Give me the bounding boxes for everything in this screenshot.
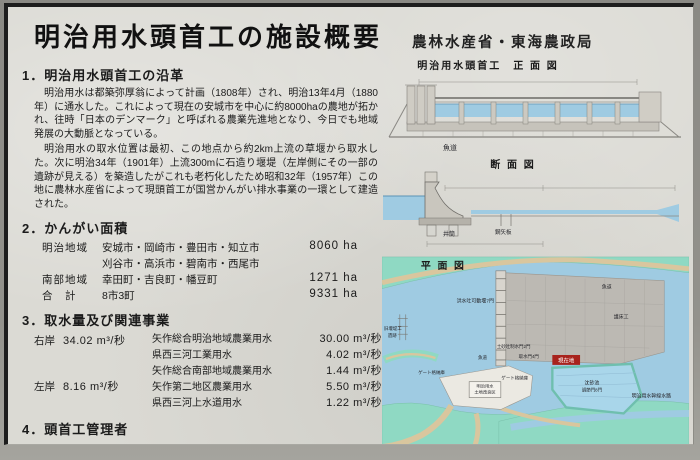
- fishway-label-bottom: 魚道: [478, 354, 487, 361]
- downstream-pool: [657, 204, 679, 222]
- area-row-label: [42, 256, 102, 271]
- intake-item: 矢作総合明治地域農業用水 30.00 m³/秒: [152, 332, 382, 348]
- intake-item-value: 4.02 m³/秒: [326, 348, 382, 364]
- area-row-label: 明治地域: [42, 240, 102, 255]
- front-elevation-drawing: 明治用水頭首工 正 面 図: [382, 58, 689, 154]
- area-row-cities: 幸田町・吉良町・幡豆町: [102, 272, 278, 287]
- area-row-value: [278, 256, 358, 271]
- front-elevation-title: 明治用水頭首工 正 面 図: [417, 59, 559, 72]
- gate-house-label-2: ゲート格納庫: [501, 375, 528, 382]
- basin-label: 沈砂池: [585, 380, 600, 387]
- left-bank-label: 左岸: [34, 379, 55, 394]
- history-paragraph-1: 明治用水は都築弥厚翁によって計画（1808年）され、明治13年4月（1880年）…: [34, 87, 378, 141]
- right-abutment: [639, 92, 661, 122]
- right-bank-label: 右岸: [34, 333, 55, 348]
- section-history-heading: 1．明治用水頭首工の沿革: [22, 65, 382, 84]
- right-bank-row: 右岸 34.02 m³/秒: [34, 332, 152, 348]
- front-elevation-figure: 明治用水頭首工 正 面 図: [382, 58, 689, 154]
- sign-content: 1．明治用水頭首工の沿革 明治用水は都築弥厚翁によって計画（1808年）され、明…: [8, 58, 693, 445]
- plan-view-title: 平 面 図: [421, 260, 466, 272]
- intake-table: 右岸 34.02 m³/秒 左岸 8.16 m³/秒 矢作総合明治地域農業用水: [34, 332, 382, 412]
- sand-gates-label: 土砂吐制水門2門: [497, 343, 531, 350]
- section-intake: 3．取水量及び関連事業 右岸 34.02 m³/秒 左岸 8.16 m³/秒: [22, 310, 382, 412]
- caisson-label: 井筒: [443, 230, 455, 238]
- gate-housing: [425, 172, 437, 182]
- cross-section-drawing: 断 面 図: [382, 154, 689, 256]
- downstream-water: [471, 210, 657, 214]
- old-weir-label-1: 旧堰堤工: [384, 325, 402, 332]
- fishway-label-top: 魚道: [602, 284, 612, 291]
- sheet-pile-label: 鋼矢板: [495, 228, 512, 236]
- intake-item: 県西三河上水道用水 1.22 m³/秒: [152, 396, 382, 412]
- section-manager: 4．頭首工管理者 明治用水土地改良区 安城市大東町 TEL.0566.76-62…: [22, 419, 382, 445]
- area-row-value: 1271 ha: [278, 272, 358, 287]
- foundation-hatch: [423, 131, 633, 137]
- gate-house-label-1: ゲート格納庫: [418, 369, 445, 376]
- old-weir-label-2: 遺跡: [388, 332, 397, 339]
- current-location-label: 現在地: [558, 356, 575, 364]
- weir-axis-bridge: [496, 271, 506, 366]
- intake-item-list: 矢作総合明治地域農業用水 30.00 m³/秒 県西三河工業用水 4.02 m³…: [152, 332, 382, 412]
- weir-base: [407, 122, 659, 131]
- plan-view-map: 平 面 図 洪水吐可動堰7門 土砂吐制水門2門 取水門4門 魚道 魚道 護床工 …: [382, 256, 689, 445]
- intake-item-value: 30.00 m³/秒: [320, 332, 382, 348]
- section-intake-heading: 3．取水量及び関連事業: [22, 310, 382, 329]
- intake-item-value: 1.44 m³/秒: [326, 364, 382, 380]
- intake-item-name: 矢作総合明治地域農業用水: [152, 333, 272, 348]
- area-row-label: 合 計: [42, 288, 102, 303]
- intake-item-name: 矢作総合南部地域農業用水: [152, 365, 272, 380]
- section-history: 1．明治用水頭首工の沿革 明治用水は都築弥厚翁によって計画（1808年）され、明…: [22, 65, 382, 211]
- irrigation-area-table: 明治地域 安城市・岡崎市・豊田市・知立市 8060 ha 刈谷市・高浜市・碧南市…: [42, 240, 382, 303]
- area-row-cities: 安城市・岡崎市・豊田市・知立市: [102, 240, 278, 255]
- area-row-value: 8060 ha: [278, 240, 358, 255]
- history-paragraph-2: 明治用水の取水位置は最初、この地点から約2km上流の草堰から取水した。次に明治3…: [34, 143, 378, 211]
- apron-label: 護床工: [614, 313, 629, 320]
- intake-item-value: 1.22 m³/秒: [326, 396, 382, 412]
- intake-item: 矢作総合南部地域農業用水 1.44 m³/秒: [152, 364, 382, 380]
- main-canal-label: 明治用水幹線水路: [632, 393, 672, 400]
- section-irrigation-area-heading: 2．かんがい面積: [22, 218, 382, 237]
- left-bank-value: 8.16 m³/秒: [63, 378, 119, 394]
- intake-towers: [405, 85, 437, 124]
- front-fishway-label: 魚道: [443, 143, 457, 152]
- intake-gates-label: 取水門4門: [519, 353, 540, 360]
- cross-section-figure: 断 面 図: [382, 154, 689, 256]
- right-bank-value: 34.02 m³/秒: [63, 332, 125, 348]
- area-row-cities: 刈谷市・高浜市・碧南市・西尾市: [102, 256, 278, 271]
- office-label-2: 土地改良区: [474, 389, 496, 396]
- cross-section-title: 断 面 図: [490, 158, 536, 171]
- sign-header: 明治用水頭首工の施設概要 農林水産省・東海農政局: [8, 7, 693, 54]
- figure-column: 明治用水頭首工 正 面 図: [382, 58, 693, 445]
- right-abutment-slope: [661, 122, 679, 137]
- area-row-value: 9331 ha: [278, 288, 358, 303]
- intake-item-name: 矢作第二地区農業用水: [152, 381, 252, 396]
- basin-gates-label: 調節門8門: [582, 387, 603, 394]
- area-row-label: 南部地域: [42, 272, 102, 287]
- intake-item: 県西三河工業用水 4.02 m³/秒: [152, 348, 382, 364]
- sign-board: 明治用水頭首工の施設概要 農林水産省・東海農政局 1．明治用水頭首工の沿革 明治…: [4, 3, 694, 445]
- photo-background: 明治用水頭首工の施設概要 農林水産省・東海農政局 1．明治用水頭首工の沿革 明治…: [0, 0, 700, 460]
- flood-gates-label: 洪水吐可動堰7門: [457, 298, 494, 305]
- intake-item-value: 5.50 m³/秒: [326, 380, 382, 396]
- section-manager-heading: 4．頭首工管理者: [22, 419, 382, 438]
- intake-item-name: 県西三河上水道用水: [152, 397, 242, 412]
- area-row-cities: 8市3町: [102, 288, 278, 303]
- left-abutment-slope: [389, 104, 407, 137]
- sign-title: 明治用水頭首工の施設概要: [34, 17, 382, 54]
- left-bank-row: 左岸 8.16 m³/秒: [34, 378, 152, 394]
- section-irrigation-area: 2．かんがい面積 明治地域 安城市・岡崎市・豊田市・知立市 8060 ha 刈谷…: [22, 218, 382, 303]
- dam-foundation: [419, 218, 471, 225]
- text-column: 1．明治用水頭首工の沿革 明治用水は都築弥厚翁によって計画（1808年）され、明…: [8, 58, 382, 445]
- upstream-water: [383, 196, 425, 220]
- bank-totals: 右岸 34.02 m³/秒 左岸 8.16 m³/秒: [34, 332, 152, 412]
- agency-name: 農林水産省・東海農政局: [412, 31, 594, 52]
- intake-item: 矢作第二地区農業用水 5.50 m³/秒: [152, 380, 382, 396]
- office-label-1: 明治用水: [476, 383, 494, 390]
- intake-item-name: 県西三河工業用水: [152, 349, 232, 364]
- dam-body: [425, 182, 463, 220]
- plan-view-figure: 平 面 図 洪水吐可動堰7門 土砂吐制水門2門 取水門4門 魚道 魚道 護床工 …: [382, 256, 689, 445]
